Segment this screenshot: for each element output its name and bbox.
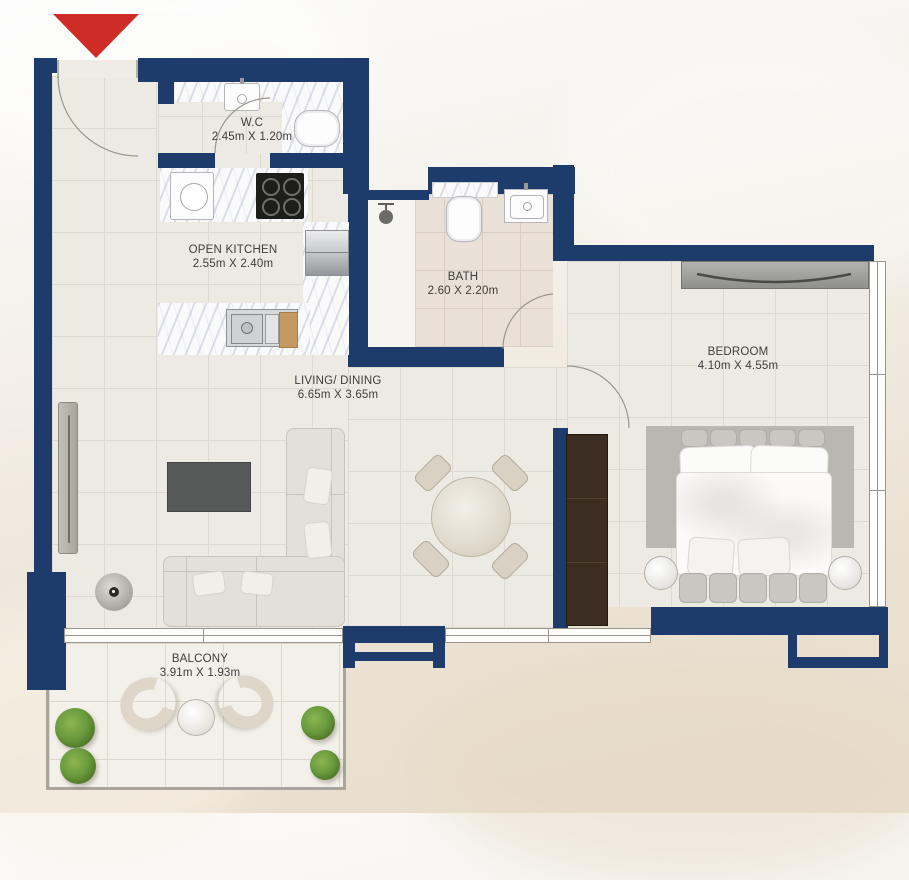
room-dims: 2.45m X 1.20m (212, 130, 293, 144)
room-dims: 2.55m X 2.40m (189, 257, 278, 271)
cooktop-icon (256, 173, 304, 219)
wall-bath-bottom (348, 347, 504, 367)
kitchen-sink-icon (170, 172, 214, 220)
floor-lamp-icon (95, 573, 133, 611)
bed-foot-bench (678, 572, 828, 604)
wall-kitchen-bar (343, 58, 369, 194)
room-label-bath: BATH 2.60 X 2.20m (428, 270, 499, 298)
background-blob (420, 660, 909, 880)
wall-shower-top (363, 190, 429, 200)
dining-table-icon (431, 477, 511, 557)
balcony-railing-bottom (46, 787, 346, 790)
plant-icon (301, 706, 335, 740)
nightstand-icon (644, 556, 678, 590)
bath-sink-icon (504, 189, 548, 223)
wall-top-stub (34, 58, 57, 73)
wall-left-pillar (27, 572, 66, 690)
sofa-pillow (240, 570, 274, 596)
sofa-pillow (303, 521, 333, 560)
wall-kitchen-right (348, 190, 368, 350)
wall-bay-living-bottom (352, 652, 436, 661)
entrance-arrow-icon (53, 14, 139, 58)
balcony-table-icon (177, 699, 215, 736)
wall-bedroom-bottom (651, 607, 888, 635)
wc-toilet-icon (294, 110, 340, 147)
floor-plan-canvas: W.C 2.45m X 1.20m OPEN KITCHEN 2.55m X 2… (0, 0, 909, 813)
plant-icon (310, 750, 340, 780)
fridge-icon (305, 230, 349, 276)
wall-left (34, 58, 52, 572)
wall-bay-living-left (343, 626, 355, 668)
room-dims: 6.65m X 3.65m (294, 388, 381, 402)
room-label-balcony: BALCONY 3.91m X 1.93m (160, 652, 241, 680)
wardrobe (566, 434, 608, 626)
room-label-bedroom: BEDROOM 4.10m X 4.55m (698, 345, 779, 373)
room-name: OPEN KITCHEN (189, 243, 278, 257)
shower-floor (368, 200, 416, 347)
sofa-pillow (192, 570, 227, 597)
room-label-wc: W.C 2.45m X 1.20m (212, 116, 293, 144)
media-cabinet (58, 402, 78, 554)
room-label-kitchen: OPEN KITCHEN 2.55m X 2.40m (189, 243, 278, 271)
window-living-south (445, 628, 651, 643)
wall-bay-bedroom-right (879, 635, 888, 668)
tv-icon (167, 462, 251, 512)
wall-wc-bottom-right (270, 153, 348, 168)
wc-sink-icon (224, 83, 260, 111)
entrance-opening (57, 60, 138, 78)
wall-bay-living-top (343, 626, 445, 643)
room-dims: 4.10m X 4.55m (698, 359, 779, 373)
bed-icon (676, 428, 830, 578)
room-name: LIVING/ DINING (294, 374, 381, 388)
room-label-living-dining: LIVING/ DINING 6.65m X 3.65m (294, 374, 381, 402)
room-dims: 2.60 X 2.20m (428, 284, 499, 298)
room-name: BATH (428, 270, 499, 284)
wall-wc-bottom-left (158, 153, 215, 168)
room-dims: 3.91m X 1.93m (160, 666, 241, 680)
bath-toilet-icon (446, 196, 482, 242)
window-living-balcony (64, 628, 343, 643)
kitchen-prep-sink-icon (226, 309, 298, 347)
wall-bay-living-right (433, 626, 445, 668)
chopping-board-icon (279, 312, 298, 348)
wall-wc-left-stub (158, 80, 174, 104)
sofa-pillow (303, 466, 334, 505)
nightstand-icon (828, 556, 862, 590)
room-name: BALCONY (160, 652, 241, 666)
window-bedroom-right (869, 261, 886, 607)
dresser (681, 261, 869, 289)
room-name: W.C (212, 116, 293, 130)
room-name: BEDROOM (698, 345, 779, 359)
plant-icon (60, 748, 96, 784)
wall-bedroom-top (553, 245, 874, 261)
wall-bay-bedroom-bottom (788, 657, 888, 668)
plant-icon (55, 708, 95, 748)
